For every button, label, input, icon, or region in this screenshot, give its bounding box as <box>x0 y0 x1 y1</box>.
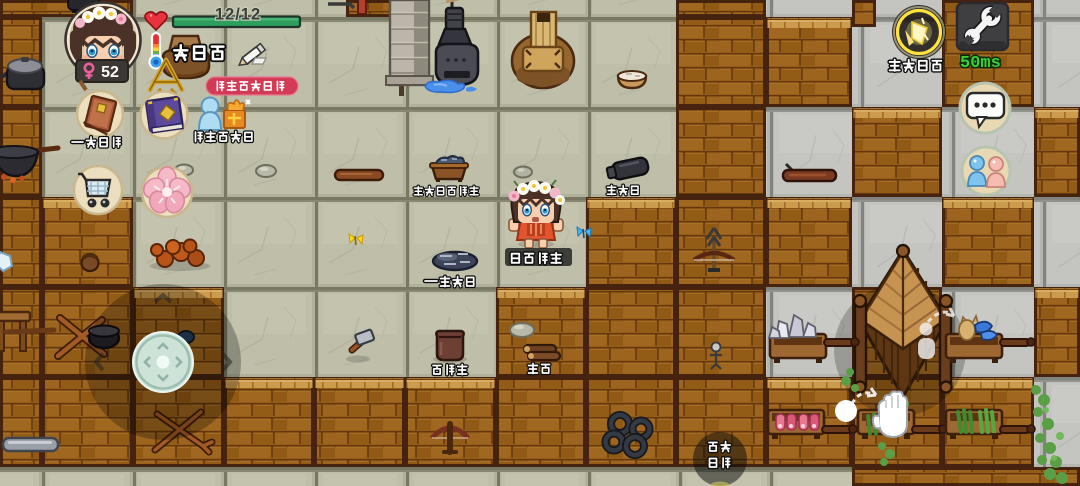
svg-text:52: 52 <box>101 64 119 81</box>
svg-text:12/12: 12/12 <box>215 6 261 24</box>
svg-text:50ms: 50ms <box>960 54 1001 73</box>
